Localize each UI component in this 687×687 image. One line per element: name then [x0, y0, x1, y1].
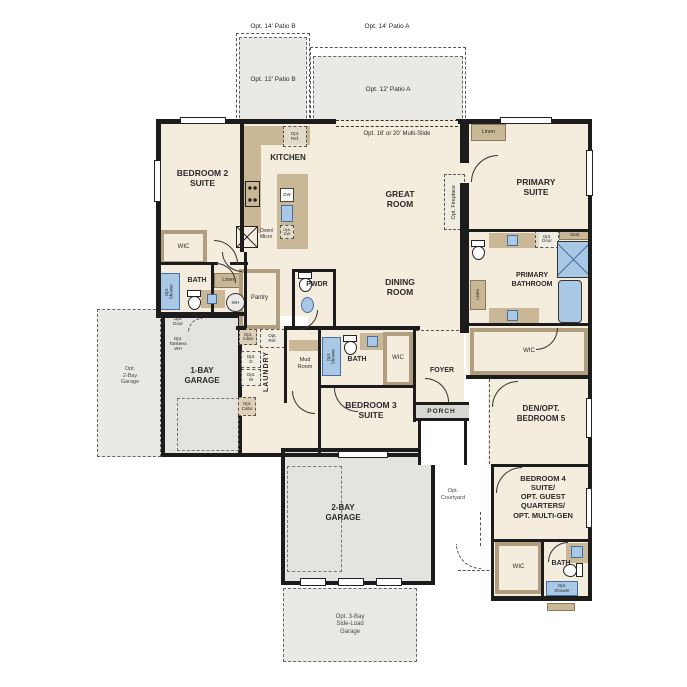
primary-wic: WIC — [470, 328, 588, 375]
bath4-sink-icon — [571, 546, 583, 558]
porch-label: PORCH — [427, 408, 455, 416]
kitchen-label: KITCHEN — [256, 153, 320, 163]
wall-left-outer — [156, 119, 161, 318]
kitchen-opt-ref-label: Opt. Ref. — [291, 132, 300, 141]
foyer-top-dashed-opening — [416, 330, 464, 331]
laundry-opt-cabs-2-label: Opt. Cabs — [242, 402, 253, 411]
wall-laundry-top-a — [236, 326, 246, 330]
bedroom2-wic-label: WIC — [178, 244, 190, 251]
opt-tankless-wh-label: Opt. Tankless WH — [162, 337, 194, 352]
multi-slide-label: Opt. 16' or 20' Multi-Slide — [336, 131, 458, 138]
walkway-wall-right — [464, 419, 467, 465]
bedroom4-label: BEDROOM 4 SUITE/ OPT. GUEST QUARTERS/ OP… — [499, 474, 587, 520]
garage-opt-door-label: Opt. Door — [166, 317, 190, 326]
courtyard-gate-arc — [456, 544, 481, 569]
cooktop-icon — [245, 181, 260, 207]
pwdr-label: PWDR — [299, 281, 335, 290]
dishwasher-label: DW — [283, 192, 291, 197]
bath4-shower-label: Opt. Shower — [554, 584, 569, 593]
bath2-toilet-icon — [187, 290, 201, 310]
bath3-shower: Opt. Shower — [322, 337, 341, 376]
porch-area: PORCH — [414, 404, 469, 419]
great-room-label: GREAT ROOM — [362, 189, 438, 210]
kitchen-sink-icon — [281, 205, 293, 222]
wall-bath2-inner — [211, 264, 214, 314]
wall-den-left-dashed — [489, 379, 490, 464]
primary-suite-label: PRIMARY SUITE — [492, 177, 580, 198]
window-primary-top — [500, 117, 552, 124]
oven-micro-label: Oven/ Micro — [260, 228, 287, 240]
bedroom4-wic-label: WIC — [513, 564, 525, 571]
floor-plan: Opt. 14' Patio B Opt. 14' Patio A Opt. 1… — [0, 0, 687, 687]
bedroom4-wic: WIC — [495, 542, 542, 594]
bedroom3-wic: WIC — [383, 332, 413, 386]
bath2-label: BATH — [181, 277, 213, 286]
foyer-label: FOYER — [423, 367, 461, 376]
primary-sink-2-icon — [507, 310, 518, 321]
dining-room-label: DINING ROOM — [362, 277, 438, 298]
opt-2bay-garage-label: Opt. 2-Bay Garage — [102, 366, 158, 386]
laundry-opt-ref: Opt. Ref. — [260, 329, 285, 348]
primary-toilet-icon — [471, 240, 485, 260]
primary-linen-label: Linen — [482, 129, 495, 136]
garage-door-mark-2 — [338, 578, 364, 586]
wall-primary-bath-top — [466, 229, 588, 232]
bath3-shower-label: Opt. Shower — [327, 349, 336, 364]
window-den-right — [586, 398, 592, 438]
entry-walkway — [421, 421, 464, 465]
laundry-opt-dryer-label: Opt. D — [247, 355, 256, 364]
bath3-sink-icon — [367, 336, 378, 347]
laundry-opt-cabs-2: Opt. Cabs — [238, 397, 256, 416]
patio-12a-label: Opt. 12' Patio A — [366, 86, 411, 94]
wall-bed2-bath-a — [158, 262, 218, 265]
bath3-label: BATH — [342, 356, 372, 365]
primary-bath-linen: Linen — [470, 280, 486, 310]
water-heater-icon: WH — [226, 293, 245, 312]
bath4-shower: Opt. Shower — [546, 581, 578, 596]
patio-14b-label: Opt. 14' Patio B — [237, 23, 309, 31]
primary-wic-label: WIC — [523, 348, 535, 355]
multi-slide-door — [336, 120, 458, 127]
wall-hall-divider — [244, 252, 247, 328]
bath4-entry-step — [547, 603, 575, 611]
laundry-opt-washer: Opt. W — [241, 369, 261, 386]
wall-porch-top — [414, 402, 469, 405]
window-bedroom2-top — [180, 117, 226, 124]
wall-bath2-bottom — [158, 312, 244, 316]
primary-bath-opt-door: Opt. Door — [535, 230, 559, 248]
window-primary-right — [586, 150, 593, 196]
laundry-opt-ref-label: Opt. Ref. — [268, 334, 277, 343]
wall-wing-gap-lower — [460, 183, 469, 333]
wall-primary-bath-bottom — [466, 323, 588, 326]
pantry-label: Pantry — [251, 295, 268, 302]
garage-2bay-label: 2-BAY GARAGE — [312, 503, 374, 523]
bedroom2-wic: WIC — [160, 230, 207, 265]
courtyard-dash-vertical — [480, 512, 481, 546]
opt-courtyard-label: Opt. Courtyard — [436, 488, 470, 501]
primary-bath-opt-door-label: Opt. Door — [542, 235, 552, 244]
mud-room-bench — [289, 340, 320, 351]
primary-bath-linen-label: Linen — [476, 289, 481, 300]
primary-sink-1-icon — [507, 235, 518, 246]
water-heater-label: WH — [232, 300, 240, 305]
dishwasher-icon: DW — [280, 188, 294, 202]
garage-1bay-storage-outline — [177, 398, 239, 451]
patio-12a-area: Opt. 12' Patio A — [313, 56, 463, 123]
den-label: DEN/OPT. BEDROOM 5 — [497, 404, 585, 424]
patio-12b-area: Opt. 12' Patio B — [239, 37, 307, 123]
kitchen-opt-ref-box: Opt. Ref. — [283, 126, 307, 147]
wall-porch-bottom — [414, 418, 469, 421]
laundry-opt-cabs-1: Opt. Cabs — [239, 329, 257, 345]
courtyard-dash-horizontal — [458, 570, 494, 571]
bath2-shower: Opt. Shower — [159, 273, 180, 310]
wall-laundry-mud-sep — [284, 330, 287, 403]
patio-12b-label: Opt. 12' Patio B — [250, 76, 295, 84]
bath2-sink-icon — [207, 294, 217, 304]
primary-bathroom-label: PRIMARY BATHROOM — [490, 272, 574, 289]
bedroom3-label: BEDROOM 3 SUITE — [326, 400, 416, 421]
wall-bed3-bottom — [236, 453, 420, 457]
opt-3bay-garage-label: Opt. 3-Bay Side-Load Garage — [336, 614, 365, 636]
laundry-opt-dryer: Opt. D — [241, 351, 261, 368]
mud-room-label: Mud Room — [289, 357, 321, 370]
wall-bed4-left — [491, 464, 494, 601]
window-bed3-bottom — [338, 451, 388, 458]
wall-den-bed4-sep — [493, 464, 592, 467]
walkway-wall-left — [418, 419, 421, 465]
bath3-toilet-icon — [343, 335, 357, 355]
opt-fireplace-label: Opt. Fireplace — [451, 185, 458, 220]
bath4-label: BATH — [546, 560, 576, 569]
bedroom3-wic-label: WIC — [392, 355, 404, 362]
opt-3bay-garage-area: Opt. 3-Bay Side-Load Garage — [283, 588, 417, 662]
garage-door-mark-3 — [376, 578, 402, 586]
primary-linen: Linen — [471, 124, 506, 141]
wall-mud-bed3-sep — [318, 330, 321, 457]
garage-1bay-label: 1-BAY GARAGE — [171, 366, 233, 386]
bedroom2-label: BEDROOM 2 SUITE — [160, 168, 245, 189]
garage-door-mark-1 — [300, 578, 326, 586]
laundry-opt-washer-label: Opt. W — [247, 373, 256, 382]
wall-bed4-wic-sep — [493, 539, 592, 542]
patio-14a-label: Opt. 14' Patio A — [309, 23, 465, 31]
wall-wic-den-sep — [466, 375, 590, 379]
bath2-shower-label: Opt. Shower — [165, 284, 174, 299]
wall-wing-gap-upper — [460, 121, 469, 163]
laundry-label: LAUNDRY — [263, 348, 277, 396]
wall-wic4-bath4-sep — [541, 541, 544, 597]
primary-shower-seat-label: Seat — [570, 232, 579, 237]
laundry-opt-cabs-1-label: Opt. Cabs — [243, 333, 254, 342]
